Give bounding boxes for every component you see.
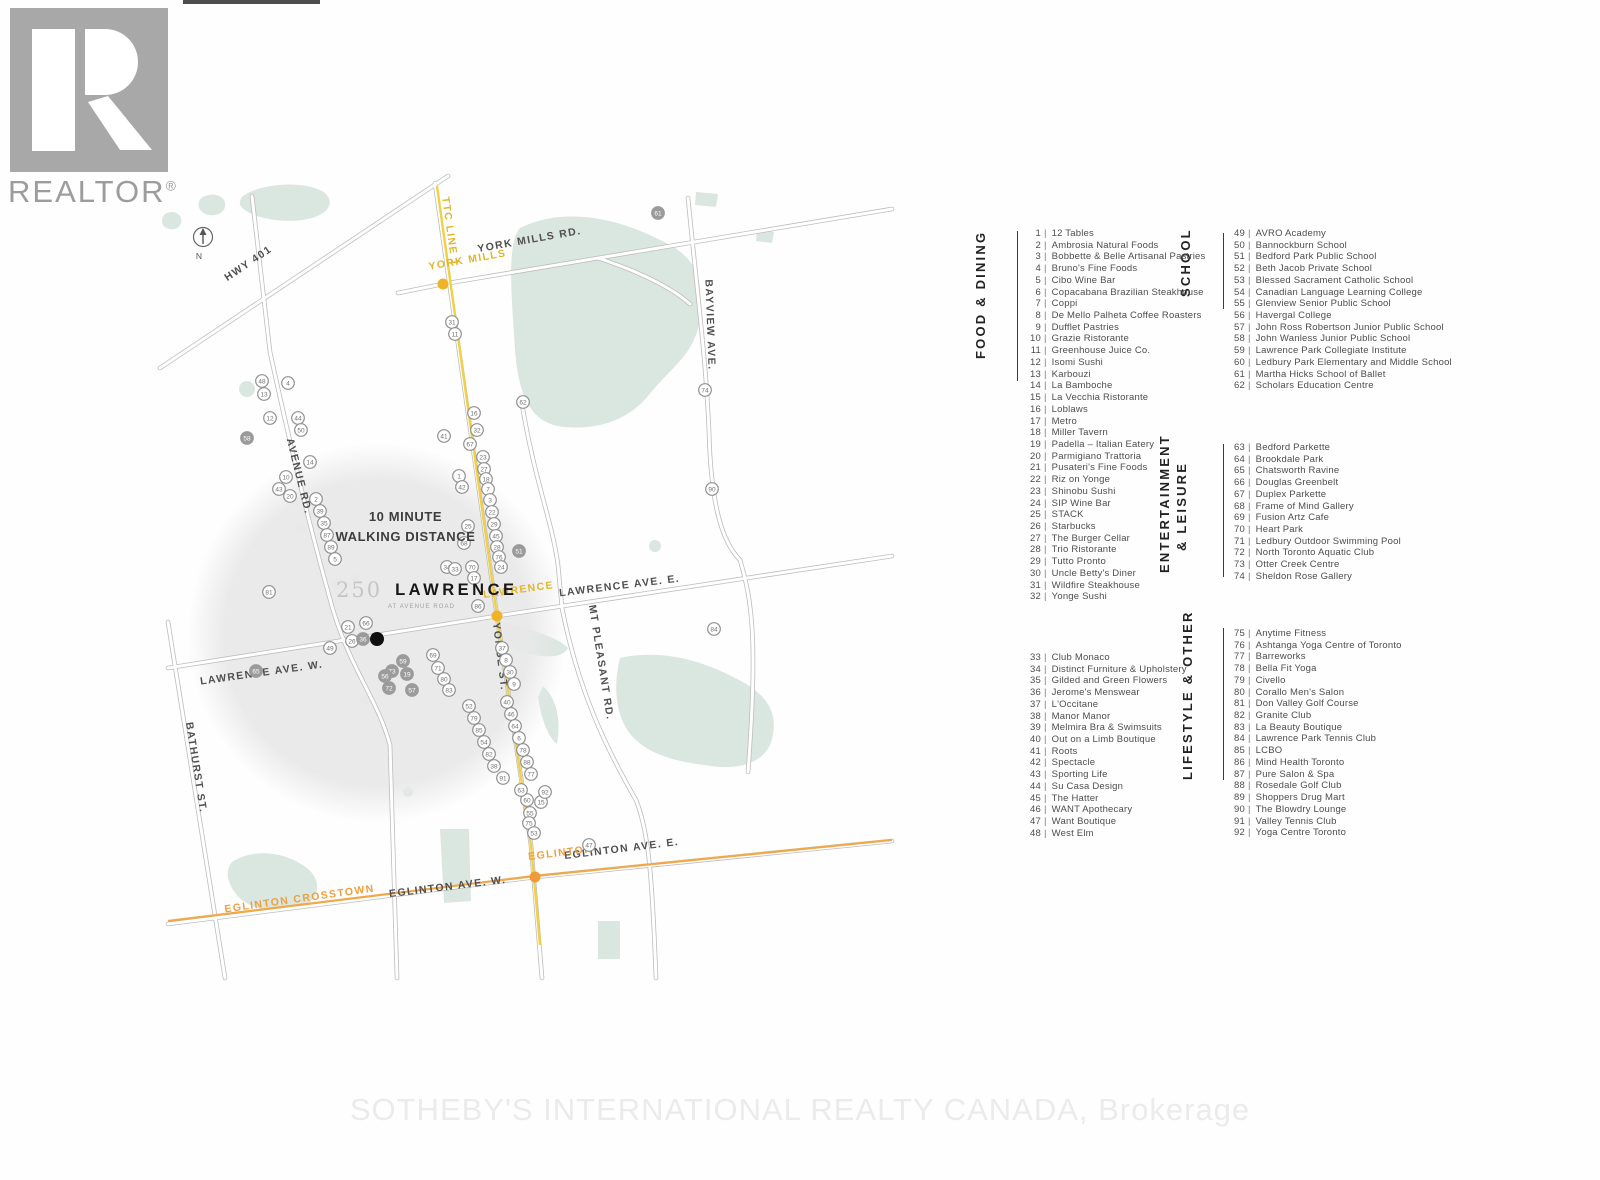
station-dot	[492, 611, 503, 622]
poi-separator: |	[1248, 228, 1251, 240]
poi-name: De Mello Palheta Coffee Roasters	[1052, 310, 1202, 322]
poi-row: 63|Bedford Parkette	[1230, 442, 1401, 454]
poi-separator: |	[1248, 687, 1251, 699]
poi-name: The Blowdry Lounge	[1256, 804, 1347, 816]
poi-name: The Hatter	[1052, 793, 1099, 805]
poi-number: 26	[1026, 521, 1041, 533]
poi-row: 67|Duplex Parkette	[1230, 489, 1401, 501]
poi-row: 38|Manor Manor	[1026, 711, 1187, 723]
poi-separator: |	[1044, 556, 1047, 568]
poi-number: 51	[1230, 251, 1245, 263]
poi-number: 46	[1026, 804, 1041, 816]
poi-marker-number: 16	[470, 410, 478, 417]
poi-row: 47|Want Boutique	[1026, 816, 1187, 828]
poi-marker-number: 37	[498, 645, 506, 652]
neighbourhood-map: N YORK MILLS RD.BAYVIEW AVE.HWY 401AVENU…	[0, 0, 1600, 1180]
poi-marker-number: 62	[519, 399, 527, 406]
poi-name: Pusateri's Fine Foods	[1052, 462, 1148, 474]
poi-row: 70|Heart Park	[1230, 524, 1401, 536]
poi-row: 57|John Ross Robertson Junior Public Sch…	[1230, 322, 1452, 334]
poi-name: John Ross Robertson Junior Public School	[1256, 322, 1444, 334]
poi-number: 79	[1230, 675, 1245, 687]
poi-marker-number: 23	[479, 454, 487, 461]
poi-name: Anytime Fitness	[1256, 628, 1327, 640]
poi-marker-number: 5	[333, 556, 337, 563]
poi-marker-number: 65	[252, 668, 260, 675]
poi-marker-number: 81	[265, 589, 273, 596]
poi-marker-number: 52	[465, 703, 473, 710]
poi-marker-number: 49	[326, 645, 334, 652]
site-logo: 250 LAWRENCE AT AVENUE ROAD	[336, 578, 486, 610]
poi-number: 52	[1230, 263, 1245, 275]
poi-number: 92	[1230, 827, 1245, 839]
poi-row: 54|Canadian Language Learning College	[1230, 287, 1452, 299]
poi-row: 60|Ledbury Park Elementary and Middle Sc…	[1230, 357, 1452, 369]
poi-number: 68	[1230, 501, 1245, 513]
poi-marker-number: 21	[344, 624, 352, 631]
poi-row: 4|Bruno's Fine Foods	[1026, 263, 1205, 275]
poi-number: 9	[1026, 322, 1041, 334]
poi-name: Ledbury Park Elementary and Middle Schoo…	[1256, 357, 1452, 369]
poi-name: Bobbette & Belle Artisanal Pastries	[1052, 251, 1206, 263]
poi-row: 78|Bella Fit Yoga	[1230, 663, 1402, 675]
realtor-text: REALTOR	[8, 174, 166, 209]
poi-separator: |	[1248, 536, 1251, 548]
poi-marker-number: 11	[452, 331, 459, 338]
poi-row: 27|The Burger Cellar	[1026, 533, 1205, 545]
poi-name: Trio Ristorante	[1052, 544, 1117, 556]
poi-separator: |	[1044, 322, 1047, 334]
poi-name: La Beauty Boutique	[1256, 722, 1343, 734]
poi-row: 51|Bedford Park Public School	[1230, 251, 1452, 263]
poi-number: 3	[1026, 251, 1041, 263]
poi-name: Pure Salon & Spa	[1256, 769, 1335, 781]
poi-separator: |	[1044, 746, 1047, 758]
poi-separator: |	[1248, 501, 1251, 513]
poi-separator: |	[1044, 533, 1047, 545]
section-header-food-dining: FOOD & DINING	[972, 230, 989, 360]
poi-marker-number: 75	[525, 820, 533, 827]
poi-number: 44	[1026, 781, 1041, 793]
poi-name: Spectacle	[1052, 757, 1096, 769]
poi-row: 42|Spectacle	[1026, 757, 1187, 769]
poi-name: Yonge Sushi	[1052, 591, 1107, 603]
poi-separator: |	[1248, 465, 1251, 477]
poi-name: Tutto Pronto	[1052, 556, 1106, 568]
poi-row: 84|Lawrence Park Tennis Club	[1230, 733, 1402, 745]
poi-name: Dufflet Pastries	[1052, 322, 1119, 334]
poi-number: 27	[1026, 533, 1041, 545]
poi-separator: |	[1044, 228, 1047, 240]
poi-name: Coppi	[1052, 298, 1078, 310]
poi-number: 62	[1230, 380, 1245, 392]
poi-row: 55|Glenview Senior Public School	[1230, 298, 1452, 310]
poi-row: 13|Karbouzi	[1026, 369, 1205, 381]
poi-marker-number: 41	[440, 433, 448, 440]
poi-row: 74|Sheldon Rose Gallery	[1230, 571, 1401, 583]
poi-name: Bedford Park Public School	[1256, 251, 1377, 263]
poi-number: 84	[1230, 733, 1245, 745]
poi-name: Scholars Education Centre	[1256, 380, 1374, 392]
poi-marker-number: 4	[286, 380, 290, 387]
poi-row: 46|WANT Apothecary	[1026, 804, 1187, 816]
school-list: 49|AVRO Academy50|Bannockburn School51|B…	[1230, 228, 1452, 392]
poi-name: Parmigiano Trattoria	[1052, 451, 1142, 463]
poi-separator: |	[1248, 745, 1251, 757]
poi-number: 1	[1026, 228, 1041, 240]
poi-separator: |	[1248, 345, 1251, 357]
poi-marker-number: 40	[503, 699, 511, 706]
poi-marker-number: 83	[445, 687, 453, 694]
poi-name: Metro	[1052, 416, 1077, 428]
poi-name: SIP Wine Bar	[1052, 498, 1111, 510]
poi-separator: |	[1248, 298, 1251, 310]
poi-row: 90|The Blowdry Lounge	[1230, 804, 1402, 816]
poi-row: 12|Isomi Sushi	[1026, 357, 1205, 369]
poi-separator: |	[1248, 559, 1251, 571]
poi-number: 71	[1230, 536, 1245, 548]
poi-number: 21	[1026, 462, 1041, 474]
poi-marker-number: 58	[243, 435, 251, 442]
poi-name: Otter Creek Centre	[1256, 559, 1340, 571]
section-line-lifestyle	[1223, 628, 1224, 780]
poi-number: 61	[1230, 369, 1245, 381]
poi-row: 71|Ledbury Outdoor Swimming Pool	[1230, 536, 1401, 548]
poi-number: 41	[1026, 746, 1041, 758]
poi-name: AVRO Academy	[1256, 228, 1326, 240]
poi-row: 65|Chatsworth Ravine	[1230, 465, 1401, 477]
poi-separator: |	[1248, 780, 1251, 792]
poi-marker-number: 10	[282, 474, 290, 481]
poi-separator: |	[1044, 722, 1047, 734]
poi-separator: |	[1248, 651, 1251, 663]
poi-name: Chatsworth Ravine	[1256, 465, 1340, 477]
poi-name: Valley Tennis Club	[1256, 816, 1337, 828]
poi-separator: |	[1248, 454, 1251, 466]
poi-marker-number: 57	[408, 687, 416, 694]
poi-number: 34	[1026, 664, 1041, 676]
poi-marker-number: 9	[512, 681, 516, 688]
poi-row: 1|12 Tables	[1026, 228, 1205, 240]
realtor-r-icon	[10, 8, 168, 172]
poi-number: 89	[1230, 792, 1245, 804]
poi-separator: |	[1248, 310, 1251, 322]
poi-row: 20|Parmigiano Trattoria	[1026, 451, 1205, 463]
poi-number: 81	[1230, 698, 1245, 710]
poi-number: 24	[1026, 498, 1041, 510]
poi-row: 92|Yoga Centre Toronto	[1230, 827, 1402, 839]
poi-marker-number: 38	[490, 763, 498, 770]
poi-name: West Elm	[1052, 828, 1094, 840]
poi-row: 76|Ashtanga Yoga Centre of Toronto	[1230, 640, 1402, 652]
poi-separator: |	[1248, 628, 1251, 640]
poi-separator: |	[1044, 580, 1047, 592]
poi-separator: |	[1044, 544, 1047, 556]
poi-separator: |	[1044, 498, 1047, 510]
poi-row: 53|Blessed Sacrament Catholic School	[1230, 275, 1452, 287]
poi-separator: |	[1248, 322, 1251, 334]
poi-name: Martha Hicks School of Ballet	[1256, 369, 1386, 381]
poi-number: 43	[1026, 769, 1041, 781]
poi-name: Manor Manor	[1052, 711, 1111, 723]
poi-separator: |	[1044, 275, 1047, 287]
poi-number: 67	[1230, 489, 1245, 501]
poi-name: WANT Apothecary	[1052, 804, 1133, 816]
poi-marker-number: 78	[519, 747, 527, 754]
poi-number: 15	[1026, 392, 1041, 404]
poi-marker-number: 63	[517, 787, 525, 794]
poi-separator: |	[1044, 828, 1047, 840]
poi-separator: |	[1044, 474, 1047, 486]
poi-separator: |	[1248, 240, 1251, 252]
poi-marker-number: 43	[275, 486, 283, 493]
poi-row: 73|Otter Creek Centre	[1230, 559, 1401, 571]
poi-number: 37	[1026, 699, 1041, 711]
poi-name: Ledbury Outdoor Swimming Pool	[1256, 536, 1401, 548]
poi-number: 57	[1230, 322, 1245, 334]
poi-name: Grazie Ristorante	[1052, 333, 1129, 345]
poi-separator: |	[1248, 477, 1251, 489]
poi-name: John Wanless Junior Public School	[1256, 333, 1411, 345]
poi-separator: |	[1044, 711, 1047, 723]
poi-number: 56	[1230, 310, 1245, 322]
top-border-bar	[183, 0, 320, 4]
poi-name: Roots	[1052, 746, 1078, 758]
poi-marker-number: 74	[701, 387, 709, 394]
poi-name: Padella – Italian Eatery	[1052, 439, 1155, 451]
poi-name: Distinct Furniture & Upholstery	[1052, 664, 1187, 676]
walking-distance-caption: 10 MINUTE WALKING DISTANCE	[318, 507, 493, 547]
poi-name: Riz on Yonge	[1052, 474, 1110, 486]
poi-marker-number: 8	[504, 657, 508, 664]
poi-number: 53	[1230, 275, 1245, 287]
road-label: YORK MILLS	[428, 247, 508, 272]
poi-row: 80|Corallo Men's Salon	[1230, 687, 1402, 699]
poi-number: 28	[1026, 544, 1041, 556]
poi-row: 33|Club Monaco	[1026, 652, 1187, 664]
poi-marker-number: 82	[485, 751, 493, 758]
poi-row: 39|Melmira Bra & Swimsuits	[1026, 722, 1187, 734]
poi-number: 85	[1230, 745, 1245, 757]
poi-number: 20	[1026, 451, 1041, 463]
poi-separator: |	[1044, 345, 1047, 357]
site-number: 250	[336, 578, 382, 602]
poi-separator: |	[1248, 816, 1251, 828]
poi-number: 32	[1026, 591, 1041, 603]
poi-name: Duplex Parkette	[1256, 489, 1327, 501]
poi-row: 31|Wildfire Steakhouse	[1026, 580, 1205, 592]
poi-separator: |	[1248, 275, 1251, 287]
poi-name: Karbouzi	[1052, 369, 1091, 381]
poi-row: 44|Su Casa Design	[1026, 781, 1187, 793]
poi-marker-number: 50	[297, 427, 305, 434]
poi-row: 23|Shinobu Sushi	[1026, 486, 1205, 498]
poi-name: Melmira Bra & Swimsuits	[1052, 722, 1162, 734]
poi-row: 21|Pusateri's Fine Foods	[1026, 462, 1205, 474]
poi-row: 82|Granite Club	[1230, 710, 1402, 722]
poi-name: Su Casa Design	[1052, 781, 1123, 793]
section-line-entertainment	[1223, 444, 1224, 577]
realtor-wordmark: REALTOR®	[8, 174, 178, 210]
poi-separator: |	[1248, 804, 1251, 816]
poi-row: 85|LCBO	[1230, 745, 1402, 757]
poi-row: 25|STACK	[1026, 509, 1205, 521]
poi-name: Douglas Greenbelt	[1256, 477, 1339, 489]
poi-number: 49	[1230, 228, 1245, 240]
poi-marker-number: 91	[499, 775, 507, 782]
poi-separator: |	[1248, 792, 1251, 804]
poi-marker-number: 26	[348, 638, 356, 645]
poi-row: 8|De Mello Palheta Coffee Roasters	[1026, 310, 1205, 322]
poi-number: 23	[1026, 486, 1041, 498]
poi-name: Granite Club	[1256, 710, 1312, 722]
poi-name: Cibo Wine Bar	[1052, 275, 1116, 287]
poi-name: Gilded and Green Flowers	[1052, 675, 1168, 687]
poi-number: 6	[1026, 287, 1041, 299]
poi-separator: |	[1248, 263, 1251, 275]
poi-marker-number: 72	[385, 685, 393, 692]
poi-marker-number: 70	[468, 564, 476, 571]
poi-name: 12 Tables	[1052, 228, 1094, 240]
poi-row: 6|Copacabana Brazilian Steakhouse	[1026, 287, 1205, 299]
poi-name: Starbucks	[1052, 521, 1096, 533]
poi-number: 73	[1230, 559, 1245, 571]
poi-name: Corallo Men's Salon	[1256, 687, 1345, 699]
poi-name: Jerome's Menswear	[1052, 687, 1140, 699]
poi-name: Beth Jacob Private School	[1256, 263, 1372, 275]
poi-marker-number: 36	[359, 636, 367, 643]
poi-separator: |	[1248, 357, 1251, 369]
station-dot	[530, 872, 541, 883]
poi-separator: |	[1044, 675, 1047, 687]
poi-row: 19|Padella – Italian Eatery	[1026, 439, 1205, 451]
poi-marker-number: 88	[523, 759, 531, 766]
poi-name: Greenhouse Juice Co.	[1052, 345, 1151, 357]
poi-row: 28|Trio Ristorante	[1026, 544, 1205, 556]
poi-number: 4	[1026, 263, 1041, 275]
road-label: BATHURST ST.	[183, 721, 209, 814]
poi-name: L'Occitane	[1052, 699, 1099, 711]
poi-separator: |	[1044, 369, 1047, 381]
poi-name: LCBO	[1256, 745, 1283, 757]
poi-number: 91	[1230, 816, 1245, 828]
poi-number: 39	[1026, 722, 1041, 734]
lifestyle-other-list-col1: 33|Club Monaco34|Distinct Furniture & Up…	[1026, 652, 1187, 840]
page: N YORK MILLS RD.BAYVIEW AVE.HWY 401AVENU…	[0, 0, 1600, 1180]
poi-name: Don Valley Golf Course	[1256, 698, 1359, 710]
poi-number: 50	[1230, 240, 1245, 252]
poi-separator: |	[1248, 827, 1251, 839]
poi-row: 77|Barreworks	[1230, 651, 1402, 663]
poi-name: Brookdale Park	[1256, 454, 1324, 466]
poi-number: 11	[1026, 345, 1041, 357]
poi-separator: |	[1044, 568, 1047, 580]
poi-name: Fusion Artz Cafe	[1256, 512, 1329, 524]
poi-row: 59|Lawrence Park Collegiate Institute	[1230, 345, 1452, 357]
poi-number: 40	[1026, 734, 1041, 746]
poi-row: 62|Scholars Education Centre	[1230, 380, 1452, 392]
poi-name: Rosedale Golf Club	[1256, 780, 1342, 792]
section-line-food	[1017, 231, 1018, 381]
poi-marker-number: 13	[260, 391, 268, 398]
poi-name: Yoga Centre Toronto	[1256, 827, 1346, 839]
poi-separator: |	[1044, 699, 1047, 711]
poi-name: Club Monaco	[1052, 652, 1110, 664]
section-line-school	[1223, 233, 1224, 309]
poi-number: 78	[1230, 663, 1245, 675]
poi-number: 45	[1026, 793, 1041, 805]
lifestyle-other-list-col2: 75|Anytime Fitness76|Ashtanga Yoga Centr…	[1230, 628, 1402, 839]
poi-marker-number: 3	[488, 497, 492, 504]
poi-marker-number: 51	[515, 548, 523, 555]
poi-separator: |	[1044, 240, 1047, 252]
poi-marker-number: 66	[362, 620, 370, 627]
poi-separator: |	[1248, 512, 1251, 524]
poi-row: 40|Out on a Limb Boutique	[1026, 734, 1187, 746]
poi-separator: |	[1248, 722, 1251, 734]
poi-name: Sheldon Rose Gallery	[1256, 571, 1352, 583]
site-tagline: AT AVENUE ROAD	[388, 604, 486, 610]
poi-separator: |	[1044, 416, 1047, 428]
poi-number: 48	[1026, 828, 1041, 840]
poi-name: Wildfire Steakhouse	[1052, 580, 1140, 592]
poi-separator: |	[1248, 640, 1251, 652]
poi-separator: |	[1044, 298, 1047, 310]
poi-name: Mind Health Toronto	[1256, 757, 1345, 769]
poi-name: Miller Tavern	[1052, 427, 1108, 439]
poi-marker-number: 7	[486, 486, 490, 493]
poi-separator: |	[1248, 733, 1251, 745]
site-marker	[370, 632, 384, 646]
poi-separator: |	[1044, 439, 1047, 451]
poi-marker-number: 69	[429, 652, 437, 659]
poi-number: 33	[1026, 652, 1041, 664]
poi-separator: |	[1248, 251, 1251, 263]
poi-name: Civello	[1256, 675, 1286, 687]
poi-row: 45|The Hatter	[1026, 793, 1187, 805]
poi-row: 79|Civello	[1230, 675, 1402, 687]
poi-separator: |	[1044, 804, 1047, 816]
poi-row: 69|Fusion Artz Cafe	[1230, 512, 1401, 524]
poi-number: 74	[1230, 571, 1245, 583]
poi-row: 52|Beth Jacob Private School	[1230, 263, 1452, 275]
poi-row: 89|Shoppers Drug Mart	[1230, 792, 1402, 804]
poi-row: 24|SIP Wine Bar	[1026, 498, 1205, 510]
poi-separator: |	[1044, 392, 1047, 404]
poi-number: 58	[1230, 333, 1245, 345]
poi-marker-number: 64	[511, 723, 519, 730]
poi-marker-number: 46	[507, 711, 515, 718]
site-name: LAWRENCE	[395, 581, 517, 600]
poi-marker-number: 85	[475, 727, 483, 734]
walking-line-1: 10 MINUTE	[318, 507, 493, 527]
poi-marker-number: 15	[537, 799, 545, 806]
poi-separator: |	[1044, 251, 1047, 263]
poi-separator: |	[1044, 664, 1047, 676]
poi-separator: |	[1044, 462, 1047, 474]
poi-name: Shinobu Sushi	[1052, 486, 1116, 498]
poi-separator: |	[1248, 489, 1251, 501]
poi-number: 80	[1230, 687, 1245, 699]
poi-row: 16|Loblaws	[1026, 404, 1205, 416]
poi-name: Isomi Sushi	[1052, 357, 1103, 369]
poi-marker-number: 2	[314, 496, 318, 503]
poi-number: 83	[1230, 722, 1245, 734]
poi-number: 66	[1230, 477, 1245, 489]
poi-number: 55	[1230, 298, 1245, 310]
poi-separator: |	[1044, 781, 1047, 793]
poi-marker-number: 20	[286, 493, 294, 500]
